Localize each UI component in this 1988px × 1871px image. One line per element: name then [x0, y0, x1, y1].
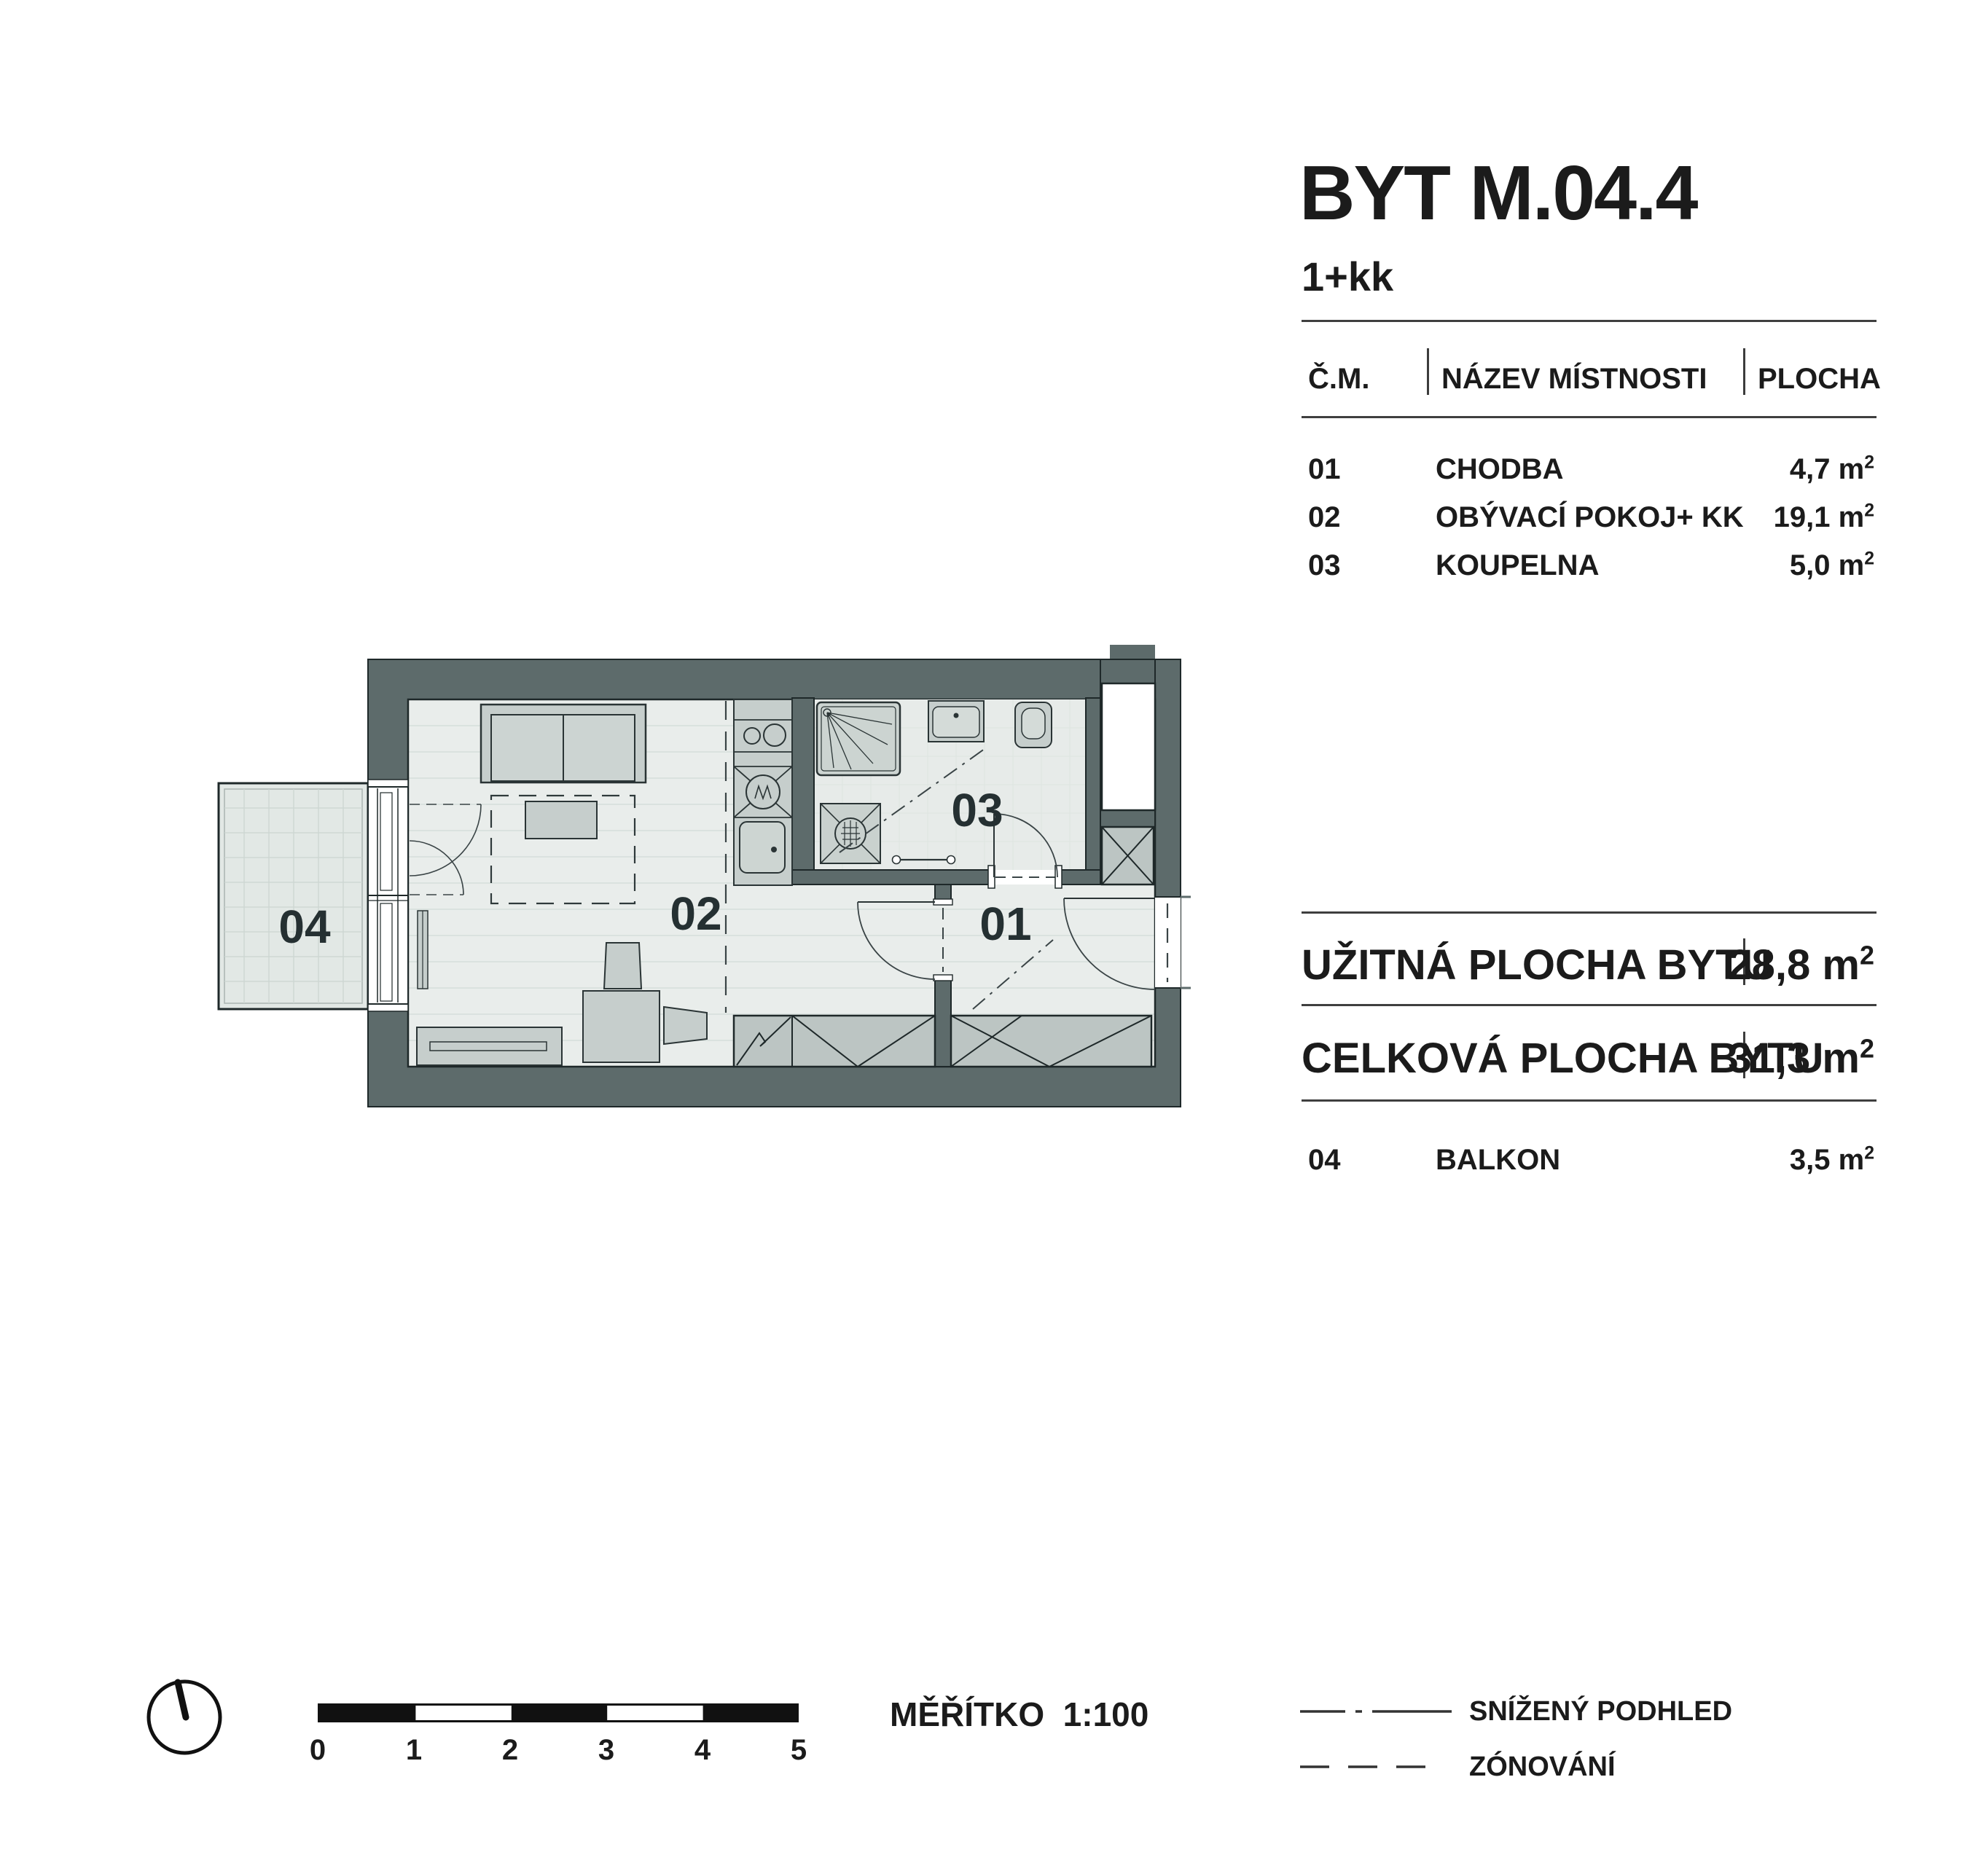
room-name: BALKON: [1436, 1145, 1560, 1174]
room-code: 03: [1308, 551, 1341, 580]
north-arrow-icon: [146, 1679, 223, 1756]
room-area: 19,1 m2: [1656, 503, 1874, 532]
divider-summary-2: [1302, 1004, 1877, 1006]
wardrobe-hall: [951, 1016, 1151, 1067]
room-code: 02: [1308, 503, 1341, 532]
room-area: 4,7 m2: [1656, 455, 1874, 484]
room-area: 5,0 m2: [1656, 551, 1874, 580]
kitchenette: [734, 699, 792, 885]
sofa: [481, 705, 646, 782]
summary-value: 28,8 m2: [1685, 944, 1874, 987]
shower: [817, 702, 900, 775]
scale-text: MĚŘÍTKO 1:100: [890, 1698, 1148, 1731]
scale-tick: 4: [694, 1735, 711, 1765]
scale-tick: 5: [791, 1735, 807, 1765]
storage-box: [1102, 827, 1154, 884]
summary-value: 31,3 m2: [1685, 1038, 1874, 1080]
floor-plan: 04 02 03 01: [204, 634, 1224, 1144]
sideboard: [417, 1027, 562, 1065]
scale-tick: 1: [406, 1735, 422, 1765]
col-header-area: PLOCHA: [1758, 364, 1881, 393]
legend-dash-dot-icon: [1300, 1708, 1453, 1715]
divider-header: [1302, 416, 1877, 418]
shaft: [1102, 683, 1155, 810]
room-code: 01: [1308, 455, 1341, 484]
legend-label-lowered-ceiling: SNÍŽENÝ PODHLED: [1469, 1698, 1732, 1725]
col-header-code: Č.M.: [1308, 364, 1369, 393]
scale-tick: 3: [598, 1735, 614, 1765]
radiator: [418, 911, 428, 989]
coffee-table: [525, 801, 597, 839]
wardrobe-living: [734, 1016, 935, 1067]
legend-dashed-icon: [1300, 1763, 1453, 1770]
washbasin: [928, 701, 984, 742]
room-name: CHODBA: [1436, 455, 1564, 484]
room-label-balcony: 04: [278, 901, 331, 953]
scale-tick: 2: [502, 1735, 518, 1765]
room-label-living: 02: [670, 887, 721, 940]
legend-label-zoning: ZÓNOVÁNÍ: [1469, 1753, 1616, 1781]
col-divider-2: [1743, 348, 1745, 395]
room-label-bath: 03: [951, 784, 1003, 836]
divider-top: [1302, 320, 1877, 322]
col-divider-1: [1427, 348, 1429, 395]
balcony-window: [368, 780, 408, 1011]
page-title: BYT M.04.4: [1299, 154, 1697, 232]
col-header-name: NÁZEV MÍSTNOSTI: [1441, 364, 1707, 393]
room-area: 3,5 m2: [1656, 1145, 1874, 1174]
layout-subtitle: 1+kk: [1302, 256, 1393, 297]
room-name: KOUPELNA: [1436, 551, 1599, 580]
scale-bar: [318, 1703, 799, 1722]
divider-summary-1: [1302, 911, 1877, 914]
scale-tick: 0: [310, 1735, 326, 1765]
floor-drain: [821, 804, 880, 863]
divider-summary-3: [1302, 1099, 1877, 1102]
kitchen-sink: [740, 822, 785, 873]
toilet: [1015, 702, 1052, 748]
room-label-hall: 01: [979, 898, 1031, 950]
balcony-04: [219, 783, 368, 1009]
room-code: 04: [1308, 1145, 1341, 1174]
wall-notch: [1110, 645, 1155, 661]
